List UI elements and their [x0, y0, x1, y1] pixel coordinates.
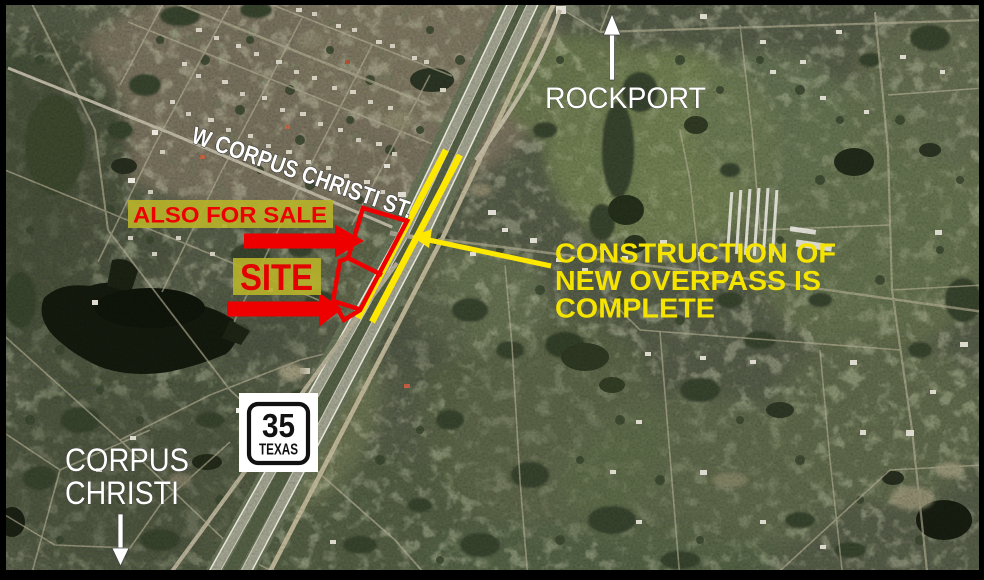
svg-text:ALSO FOR SALE: ALSO FOR SALE — [133, 203, 327, 228]
svg-text:35: 35 — [262, 407, 295, 444]
svg-text:CHRISTI: CHRISTI — [65, 475, 179, 511]
svg-text:NEW OVERPASS IS: NEW OVERPASS IS — [555, 265, 821, 296]
svg-text:CORPUS: CORPUS — [65, 442, 189, 478]
svg-text:COMPLETE: COMPLETE — [555, 293, 715, 324]
svg-text:SITE: SITE — [240, 257, 313, 298]
svg-text:TEXAS: TEXAS — [259, 442, 298, 459]
svg-text:ROCKPORT: ROCKPORT — [545, 82, 706, 115]
svg-text:CONSTRUCTION OF: CONSTRUCTION OF — [555, 238, 836, 269]
